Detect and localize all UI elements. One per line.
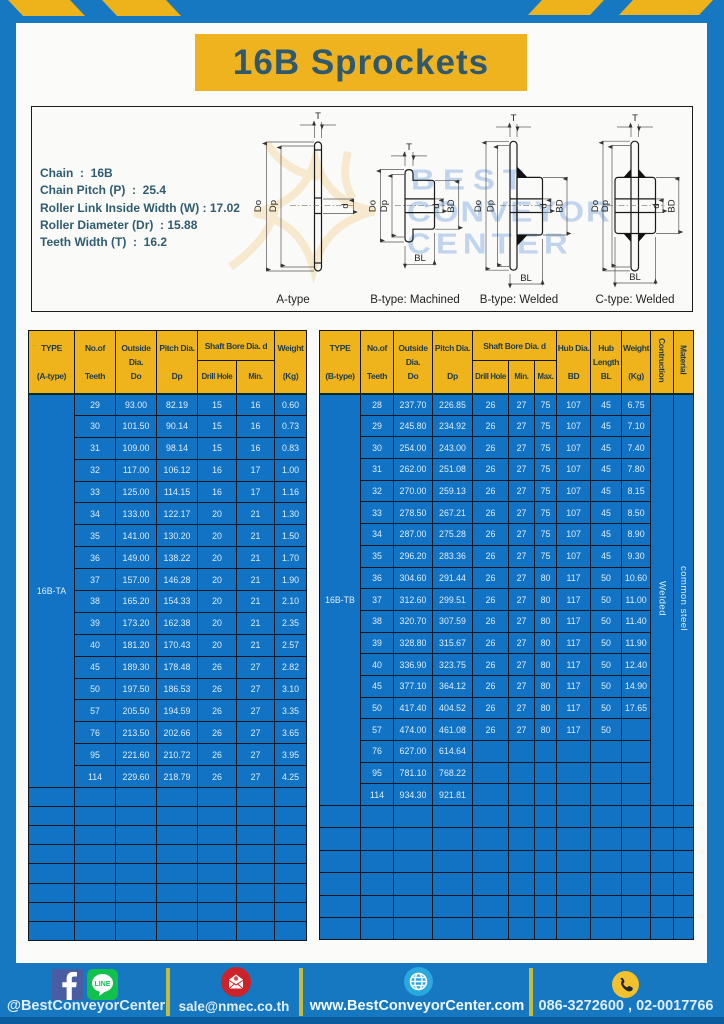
svg-text:T: T — [406, 142, 412, 153]
svg-text:d: d — [431, 203, 442, 208]
svg-text:Dp: Dp — [268, 200, 279, 212]
svg-text:BL: BL — [629, 272, 641, 283]
svg-text:LINE: LINE — [95, 981, 111, 988]
svg-text:BD: BD — [667, 199, 678, 212]
svg-text:T: T — [632, 113, 638, 124]
svg-text:Do: Do — [253, 200, 264, 212]
svg-text:d: d — [340, 203, 351, 208]
svg-text:Dp: Dp — [600, 200, 611, 212]
svg-text:BD: BD — [555, 199, 566, 212]
svg-text:BD: BD — [446, 199, 457, 212]
svg-text:T: T — [511, 113, 517, 124]
svg-text:Do: Do — [368, 200, 379, 212]
svg-text:Do: Do — [473, 200, 484, 212]
svg-text:d: d — [651, 203, 662, 208]
svg-text:T: T — [315, 111, 321, 122]
svg-text:BL: BL — [414, 253, 426, 264]
svg-text:Dp: Dp — [379, 200, 390, 212]
svg-text:BL: BL — [520, 273, 532, 284]
svg-text:d: d — [539, 203, 550, 208]
svg-text:Dp: Dp — [486, 200, 497, 212]
